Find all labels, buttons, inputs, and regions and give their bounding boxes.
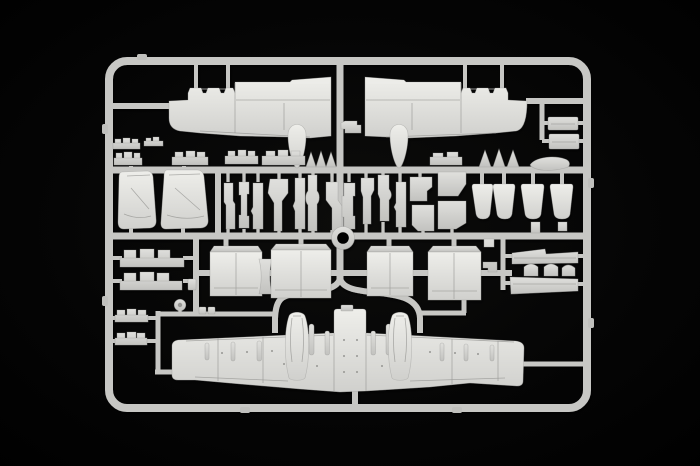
fin-left xyxy=(118,171,156,229)
nacelle-2 xyxy=(271,244,331,298)
nacelle-4 xyxy=(428,246,481,300)
sprue-photo xyxy=(0,0,700,466)
fin-right xyxy=(161,170,208,229)
nacelle-hourglass-link xyxy=(259,259,272,294)
nacelle-3 xyxy=(367,246,413,296)
gear-pod-left xyxy=(285,312,309,380)
sprue-photo-svg xyxy=(0,0,700,466)
gear-pod-right xyxy=(388,312,412,380)
nacelle-1 xyxy=(210,246,262,296)
ring-part xyxy=(332,227,355,250)
